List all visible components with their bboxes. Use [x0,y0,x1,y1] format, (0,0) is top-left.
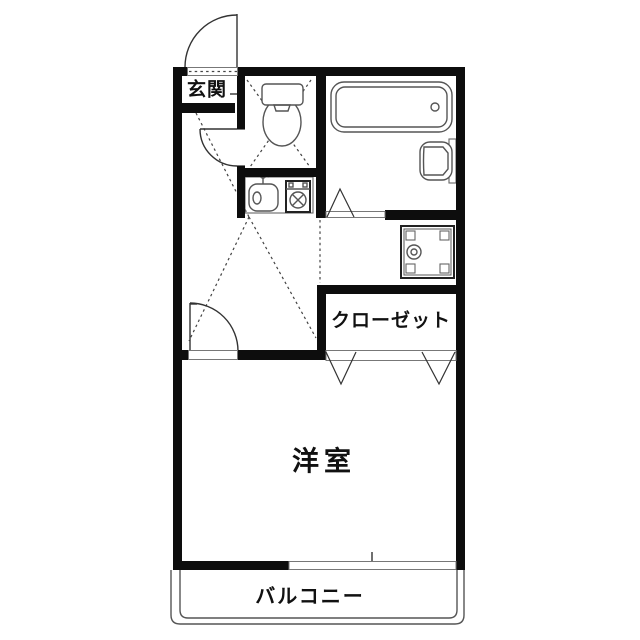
wall-segment [385,210,456,220]
wash-basin-icon [420,139,456,183]
dashed-line [189,217,249,341]
balcony-label: バルコニー [255,587,365,607]
wall-segment [173,103,235,113]
closet-label: クローゼット [331,312,451,331]
floor-plan: 玄関 クローゼット 洋室 バルコニー [0,0,640,640]
gas-stove-icon [286,181,310,212]
wall-segment [173,561,289,570]
genkan-label: 玄関 [187,81,227,100]
western-room-label: 洋室 [292,449,356,476]
wall-segment [237,168,318,177]
toilet-icon [262,84,303,146]
wall-segment [237,177,245,218]
kitchen-sink-icon [249,172,278,211]
room-door-icon [190,303,238,351]
floor-plan-drawing [0,0,640,640]
dashed-line [249,217,316,338]
wall-segment [237,76,245,129]
wall-segment [238,67,465,76]
wall-segment [173,350,188,360]
bathtub-icon [331,82,452,132]
wall-segment [173,67,182,570]
wall-segment [316,76,326,218]
closet-opening [326,351,456,361]
wall-segment [317,285,326,360]
wall-segment [317,285,456,294]
entrance-door-icon [185,14,237,67]
washing-machine-pan-icon [401,226,454,278]
wall-segment [238,350,326,360]
toilet-door-icon [200,129,237,166]
wall-segment [456,67,465,570]
room-door-opening [189,351,238,360]
balcony-window [289,562,456,570]
toilet-door-opening [237,129,245,166]
bathroom-door-threshold [326,212,385,218]
